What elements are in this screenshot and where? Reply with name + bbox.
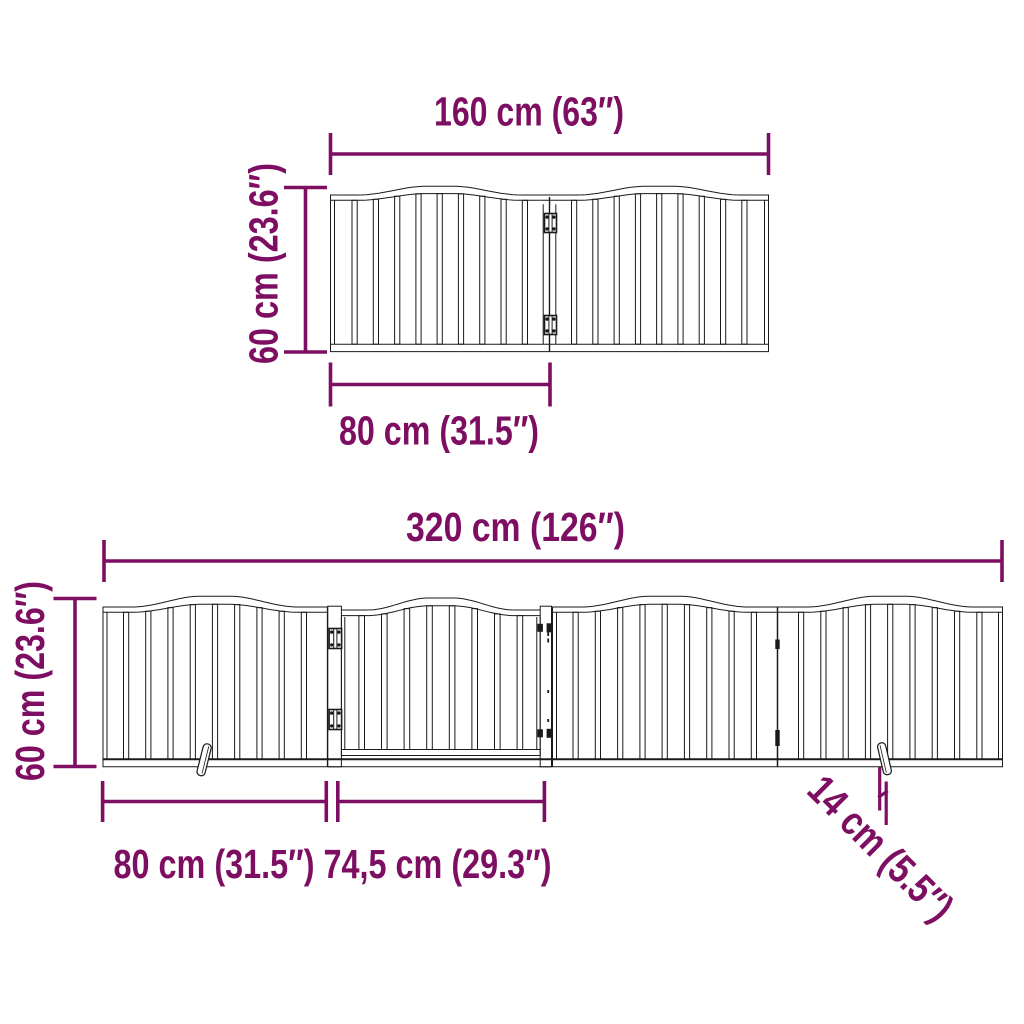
svg-text:160 cm (63″): 160 cm (63″)	[434, 89, 624, 135]
svg-text:74,5 cm (29.3″): 74,5 cm (29.3″)	[324, 841, 552, 887]
svg-text:60 cm (23.6″): 60 cm (23.6″)	[7, 581, 53, 781]
svg-text:80 cm (31.5″): 80 cm (31.5″)	[339, 408, 539, 454]
svg-text:60 cm (23.6″): 60 cm (23.6″)	[241, 163, 287, 364]
svg-text:80 cm (31.5″): 80 cm (31.5″)	[114, 841, 315, 887]
svg-text:320 cm (126″): 320 cm (126″)	[406, 504, 625, 550]
